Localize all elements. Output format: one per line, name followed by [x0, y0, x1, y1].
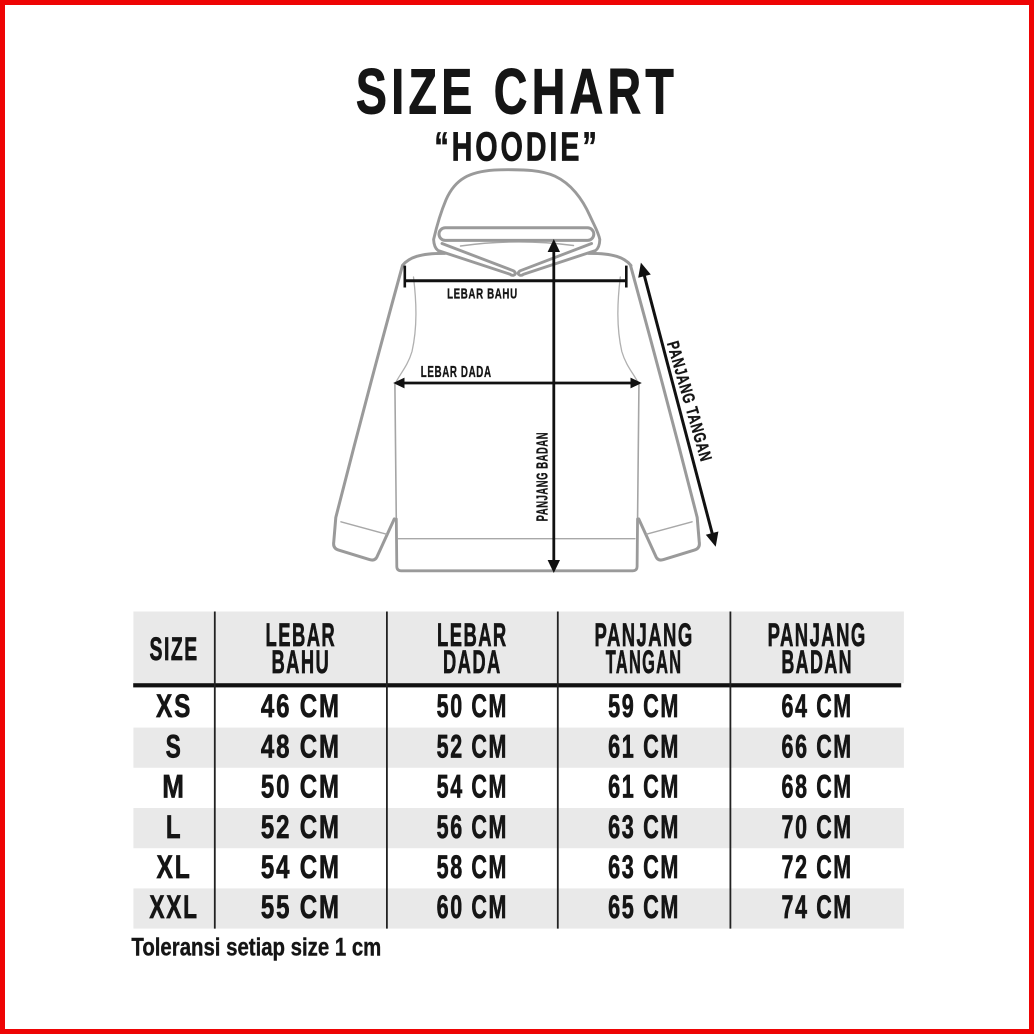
svg-text:74 CM: 74 CM [782, 889, 853, 926]
svg-text:XXL: XXL [149, 889, 198, 925]
svg-text:65 CM: 65 CM [608, 889, 680, 925]
svg-text:SIZE CHART: SIZE CHART [356, 55, 678, 127]
svg-text:46 CM: 46 CM [261, 689, 341, 725]
svg-text:L: L [166, 809, 183, 845]
svg-text:64 CM: 64 CM [782, 688, 853, 725]
svg-text:54 CM: 54 CM [261, 850, 341, 886]
svg-text:52 CM: 52 CM [437, 728, 509, 765]
svg-text:72 CM: 72 CM [782, 848, 853, 885]
svg-text:48 CM: 48 CM [261, 729, 341, 765]
svg-text:50 CM: 50 CM [261, 769, 341, 805]
svg-text:55 CM: 55 CM [261, 890, 341, 926]
svg-text:Toleransi setiap size 1 cm: Toleransi setiap size 1 cm [131, 933, 381, 961]
svg-text:BAHU: BAHU [271, 644, 330, 681]
svg-text:TANGAN: TANGAN [606, 645, 683, 680]
svg-text:58 CM: 58 CM [437, 849, 509, 886]
svg-text:66 CM: 66 CM [782, 728, 853, 765]
svg-text:XL: XL [156, 850, 191, 886]
svg-text:61 CM: 61 CM [608, 728, 680, 764]
svg-text:56 CM: 56 CM [437, 808, 509, 845]
svg-text:52 CM: 52 CM [261, 809, 341, 845]
svg-text:54 CM: 54 CM [437, 768, 509, 805]
svg-text:“HOODIE”: “HOODIE” [434, 125, 599, 170]
svg-text:68 CM: 68 CM [782, 768, 853, 805]
svg-text:SIZE: SIZE [149, 631, 198, 667]
svg-text:XS: XS [156, 689, 192, 725]
svg-text:PANJANG BADAN: PANJANG BADAN [533, 432, 551, 521]
svg-text:60 CM: 60 CM [437, 889, 509, 926]
svg-text:61 CM: 61 CM [608, 768, 680, 804]
svg-text:70 CM: 70 CM [782, 808, 853, 845]
svg-text:63 CM: 63 CM [608, 849, 680, 885]
svg-text:LEBAR BAHU: LEBAR BAHU [447, 285, 518, 302]
svg-text:DADA: DADA [443, 644, 502, 681]
svg-text:LEBAR DADA: LEBAR DADA [421, 363, 492, 381]
svg-text:59 CM: 59 CM [608, 688, 680, 724]
svg-text:BADAN: BADAN [781, 646, 853, 681]
svg-text:M: M [162, 769, 186, 805]
svg-text:63 CM: 63 CM [608, 808, 680, 844]
svg-text:50 CM: 50 CM [437, 688, 509, 725]
svg-text:S: S [166, 728, 183, 764]
